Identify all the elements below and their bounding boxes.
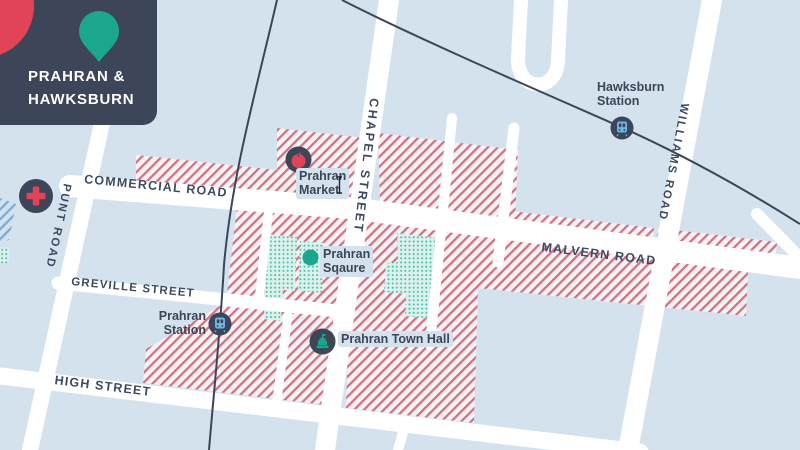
- map-canvas[interactable]: COMMERCIAL ROAD MALVERN ROAD GREVILLE ST…: [0, 0, 800, 450]
- red-circle-decoration: [0, 0, 34, 58]
- road-lane-5: [398, 425, 405, 450]
- hospital-cross-icon: [18, 178, 54, 214]
- prahran-square-marker[interactable]: [302, 249, 319, 271]
- square-dot-icon: [302, 249, 319, 266]
- hospital-marker[interactable]: [18, 178, 54, 219]
- train-icon: [610, 116, 634, 140]
- blue-hatched-zone: [0, 198, 16, 243]
- area-title: PRAHRAN & HAWKSBURN: [28, 66, 134, 111]
- label-hawksburn-station: Hawksburn Station: [597, 80, 664, 109]
- town-hall-marker[interactable]: [309, 328, 336, 360]
- map-pin-icon: [79, 11, 119, 62]
- town-hall-icon: [309, 328, 336, 355]
- text-cursor-icon: [336, 176, 343, 194]
- label-prahran-town-hall: Prahran Town Hall: [338, 331, 453, 347]
- label-prahran-station: Prahran Station: [148, 309, 206, 338]
- road-u-loop: [518, 0, 561, 85]
- road-williams: [628, 0, 712, 450]
- label-prahran-square: Prahran Sqaure: [320, 246, 373, 277]
- train-icon: [208, 312, 232, 336]
- prahran-station-marker[interactable]: [208, 312, 232, 341]
- area-header-panel: PRAHRAN & HAWKSBURN: [0, 0, 157, 125]
- hawksburn-station-marker[interactable]: [610, 116, 634, 145]
